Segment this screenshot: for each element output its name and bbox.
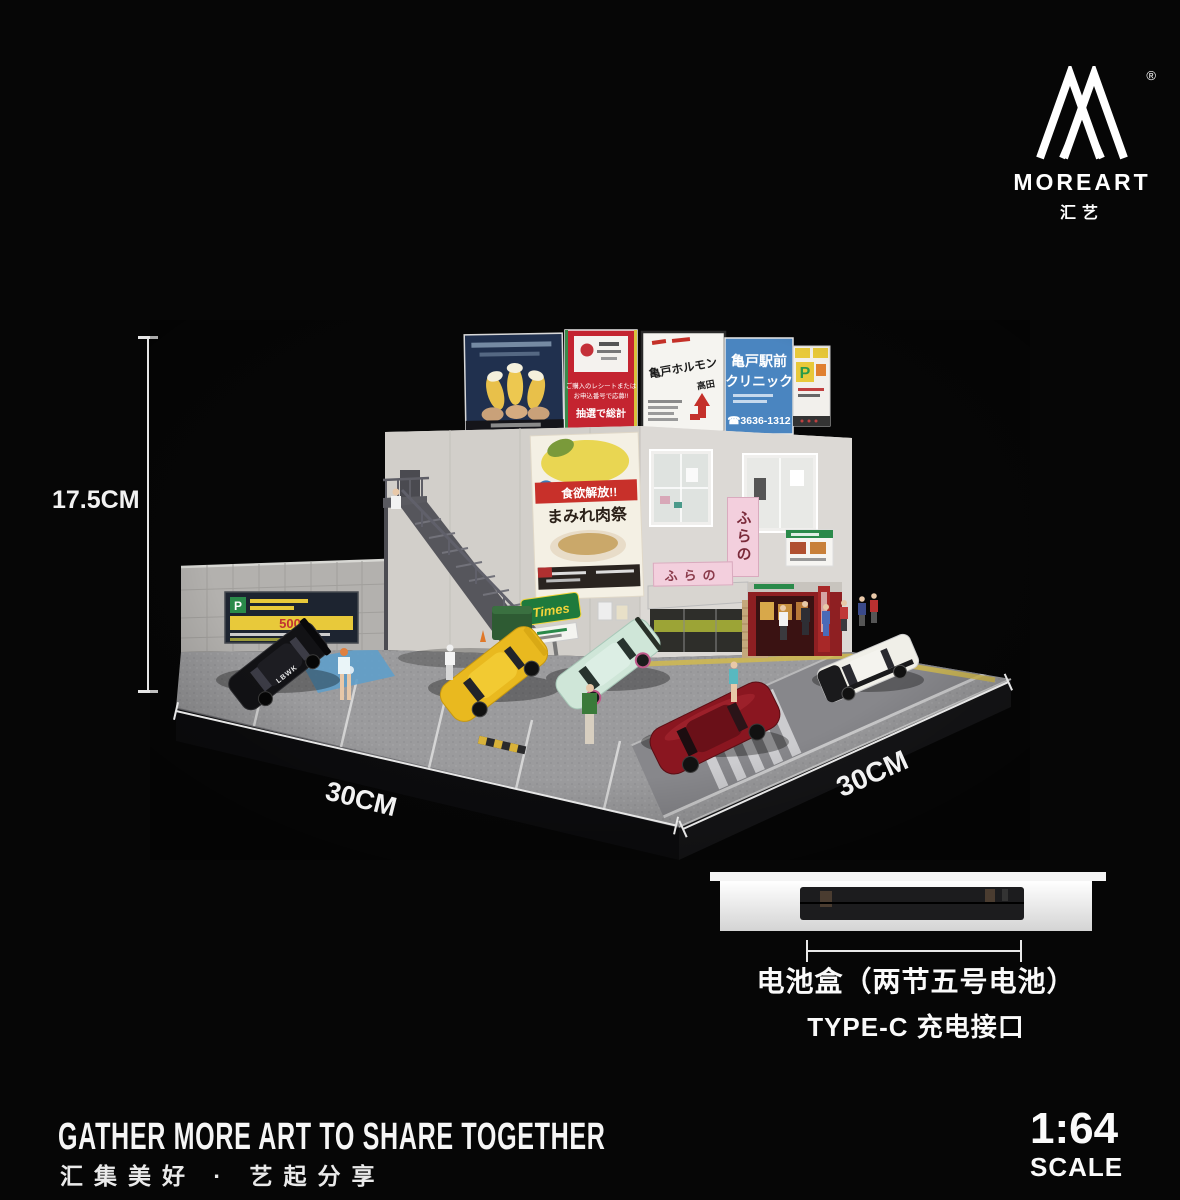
bracket-line	[806, 950, 1022, 952]
brand-logo: ® MOREART 汇艺	[1012, 66, 1152, 223]
brand-name-cn: 汇艺	[1012, 199, 1152, 223]
battery-latch-left	[820, 891, 832, 907]
mountain-logo-icon	[1012, 66, 1152, 162]
furano-horizontal-sign: ふらの	[653, 561, 733, 586]
scale-ratio: 1:64	[1030, 1104, 1118, 1154]
slogan-english: GATHER MORE ART TO SHARE TOGETHER	[58, 1116, 606, 1159]
brand-name: MOREART	[1012, 169, 1152, 196]
slogan-chinese: 汇集美好 · 艺起分享	[60, 1157, 385, 1191]
height-dimension-label: 17.5CM	[52, 486, 140, 515]
height-dimension-line	[147, 338, 149, 692]
registered-mark-icon: ®	[1146, 68, 1156, 83]
battery-port-label: TYPE-C 充电接口	[716, 1007, 1116, 1044]
battery-port	[1002, 889, 1008, 901]
product-photo-canvas: ® MOREART 汇艺 17.5CM	[0, 0, 1180, 1200]
battery-box-label: 电池盒（两节五号电池）	[716, 960, 1116, 1000]
battery-seam	[800, 902, 1024, 904]
battery-latch-right	[985, 889, 995, 903]
battery-box-tabletop	[710, 872, 1106, 881]
scale-word: SCALE	[1030, 1152, 1123, 1183]
